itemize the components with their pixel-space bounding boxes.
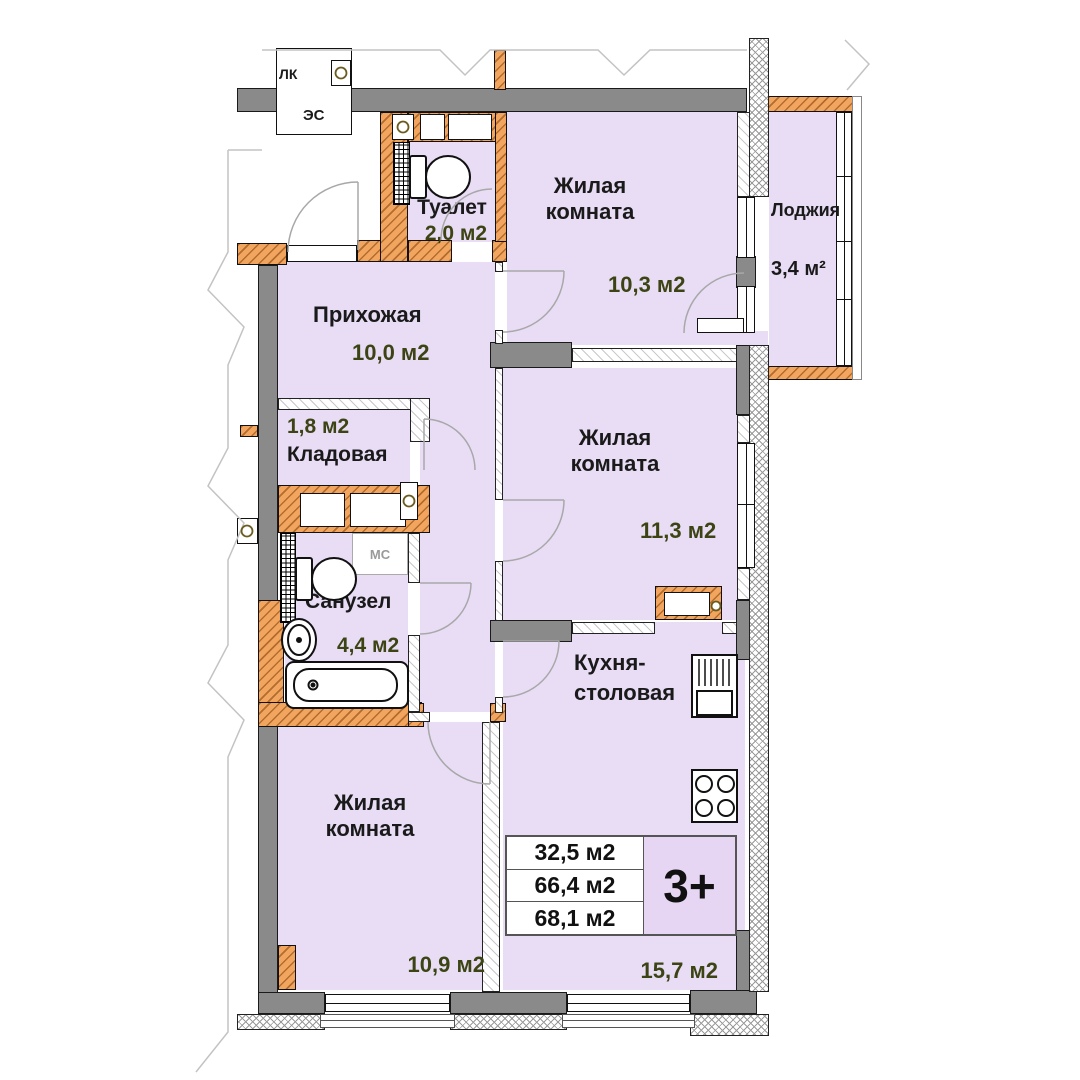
window-kitchen: [567, 994, 690, 1012]
loggia-slab-edge: [852, 96, 862, 380]
shaft-box-1: [420, 114, 445, 140]
label-hallway-name: Прихожая: [313, 302, 463, 328]
label-kitchen-name-1: Кухня-: [574, 650, 646, 676]
ext-strip-bottom-3: [690, 1014, 769, 1036]
electrical-label: ЭС: [303, 107, 325, 125]
washing-machine: МС: [352, 533, 408, 575]
label-loggia-area: 3,4 м²: [771, 258, 835, 282]
wall-pier-mid-2: [490, 620, 572, 642]
label-storage-area: 1,8 м2: [287, 415, 387, 440]
balcony-door-opening: [737, 331, 768, 345]
room-hallway: [278, 262, 495, 398]
balcony-door-leaf: [697, 318, 744, 333]
label-living3-area: 10,9 м2: [390, 952, 485, 978]
bathroom-riser-grid: [280, 533, 296, 623]
area-row-living: 32,5 м2: [507, 837, 643, 870]
shaft-box-2: [448, 114, 492, 140]
pier-right-1: [736, 256, 756, 288]
partition-storage-top: [278, 398, 430, 410]
wall-stub-top: [494, 50, 506, 90]
wall-loggia-bottom: [767, 366, 857, 380]
stairwell-label: ЛК: [279, 66, 297, 83]
wall-bottom-3: [690, 990, 757, 1014]
label-toilet-area: 2,0 м2: [412, 222, 500, 247]
area-summary-table: 32,5 м2 66,4 м2 68,1 м2 3+: [505, 835, 737, 936]
closet-box-2: [350, 493, 406, 527]
label-living1-area: 10,3 м2: [608, 272, 708, 298]
window-frame-line: [568, 1003, 689, 1004]
label-living2-name: Жилая комната: [545, 425, 685, 477]
vent-box-lobby: [331, 60, 351, 86]
window-divider: [738, 504, 754, 505]
wall-pier-mid-1: [490, 342, 572, 368]
shaft-box-corridor: [400, 482, 418, 520]
entrance-door-leaf: [287, 245, 357, 262]
partition-rooms-right: [572, 348, 737, 362]
room-living-3: [278, 722, 482, 990]
riser-box-left: [237, 518, 258, 544]
partition-1: [495, 262, 503, 272]
label-living3-name: Жилая комната: [300, 790, 440, 842]
glazing-divider: [837, 299, 851, 300]
vent-unit-box: [664, 592, 710, 616]
partition-kitchen-top-2: [722, 622, 737, 634]
vent-box-toilet-top: [392, 114, 414, 140]
loggia-glazing: [836, 112, 852, 366]
ext-strip-bottom-1: [237, 1014, 325, 1030]
label-loggia-name: Лоджия: [771, 200, 835, 221]
partition-2: [495, 330, 503, 344]
partition-3: [495, 368, 503, 500]
room-loggia: [769, 112, 836, 366]
partition-bathroom-right-1: [408, 533, 420, 583]
wall-nib-left-1: [240, 425, 258, 437]
wall-bottom-2: [450, 992, 567, 1014]
ext-strip-bottom-2: [450, 1014, 567, 1030]
wall-entrance-left: [237, 243, 287, 265]
closet-box-1: [300, 493, 345, 527]
area-summary-rows: 32,5 м2 66,4 м2 68,1 м2: [507, 837, 643, 934]
label-toilet-name: Туалет: [406, 196, 498, 221]
partition-storage-right: [410, 398, 430, 442]
window-sill-2: [562, 1014, 695, 1028]
window-living2: [737, 443, 755, 568]
label-kitchen-name-2: столовая: [574, 680, 675, 706]
glazing-divider: [837, 241, 851, 242]
entrance-door-arc: [288, 182, 358, 252]
window-sill-1: [320, 1014, 455, 1028]
floor-plan: ЛК ЭС МС 32,5 м2 66,4 м2 68,1 м2 3+ Туал…: [0, 0, 1080, 1080]
washing-machine-label: МС: [370, 547, 390, 562]
glazing-divider: [837, 176, 851, 177]
label-living2-area: 11,3 м2: [640, 518, 740, 544]
window-frame-line: [746, 198, 747, 257]
partition-4: [495, 561, 503, 621]
apartment-type-badge: 3+: [643, 837, 735, 934]
ext-wall-right-top: [749, 38, 769, 197]
window-frame-line: [746, 287, 747, 332]
room-living-2: [503, 368, 738, 620]
label-storage-name: Кладовая: [287, 443, 407, 468]
glazing-frame-line: [844, 113, 845, 365]
label-hallway-area: 10,0 м2: [352, 340, 462, 366]
sill-line: [563, 1020, 694, 1021]
wall-entrance-right: [357, 240, 382, 262]
partition-5: [495, 697, 503, 713]
window-living3: [325, 994, 450, 1012]
label-bathroom-area: 4,4 м2: [337, 634, 417, 659]
partition-kitchen-top-1: [572, 622, 655, 634]
label-kitchen-area: 15,7 м2: [628, 958, 718, 984]
partition-living3-top-l: [408, 712, 430, 722]
wall-bathroom-bottom: [258, 702, 422, 727]
wall-loggia-top: [767, 96, 857, 112]
sill-line: [321, 1020, 454, 1021]
label-bathroom-name: Санузел: [305, 590, 405, 615]
area-row-total: 68,1 м2: [507, 902, 643, 934]
label-living1-name: Жилая комната: [520, 173, 660, 225]
area-row-apartment: 66,4 м2: [507, 870, 643, 903]
window-living1-a: [737, 197, 755, 258]
wall-nib-left-2: [278, 945, 296, 990]
corridor: [420, 398, 495, 712]
window-frame-line: [326, 1003, 449, 1004]
window-frame-line: [746, 444, 747, 567]
wall-bottom-1: [258, 992, 325, 1014]
room-living-1: [507, 112, 740, 345]
